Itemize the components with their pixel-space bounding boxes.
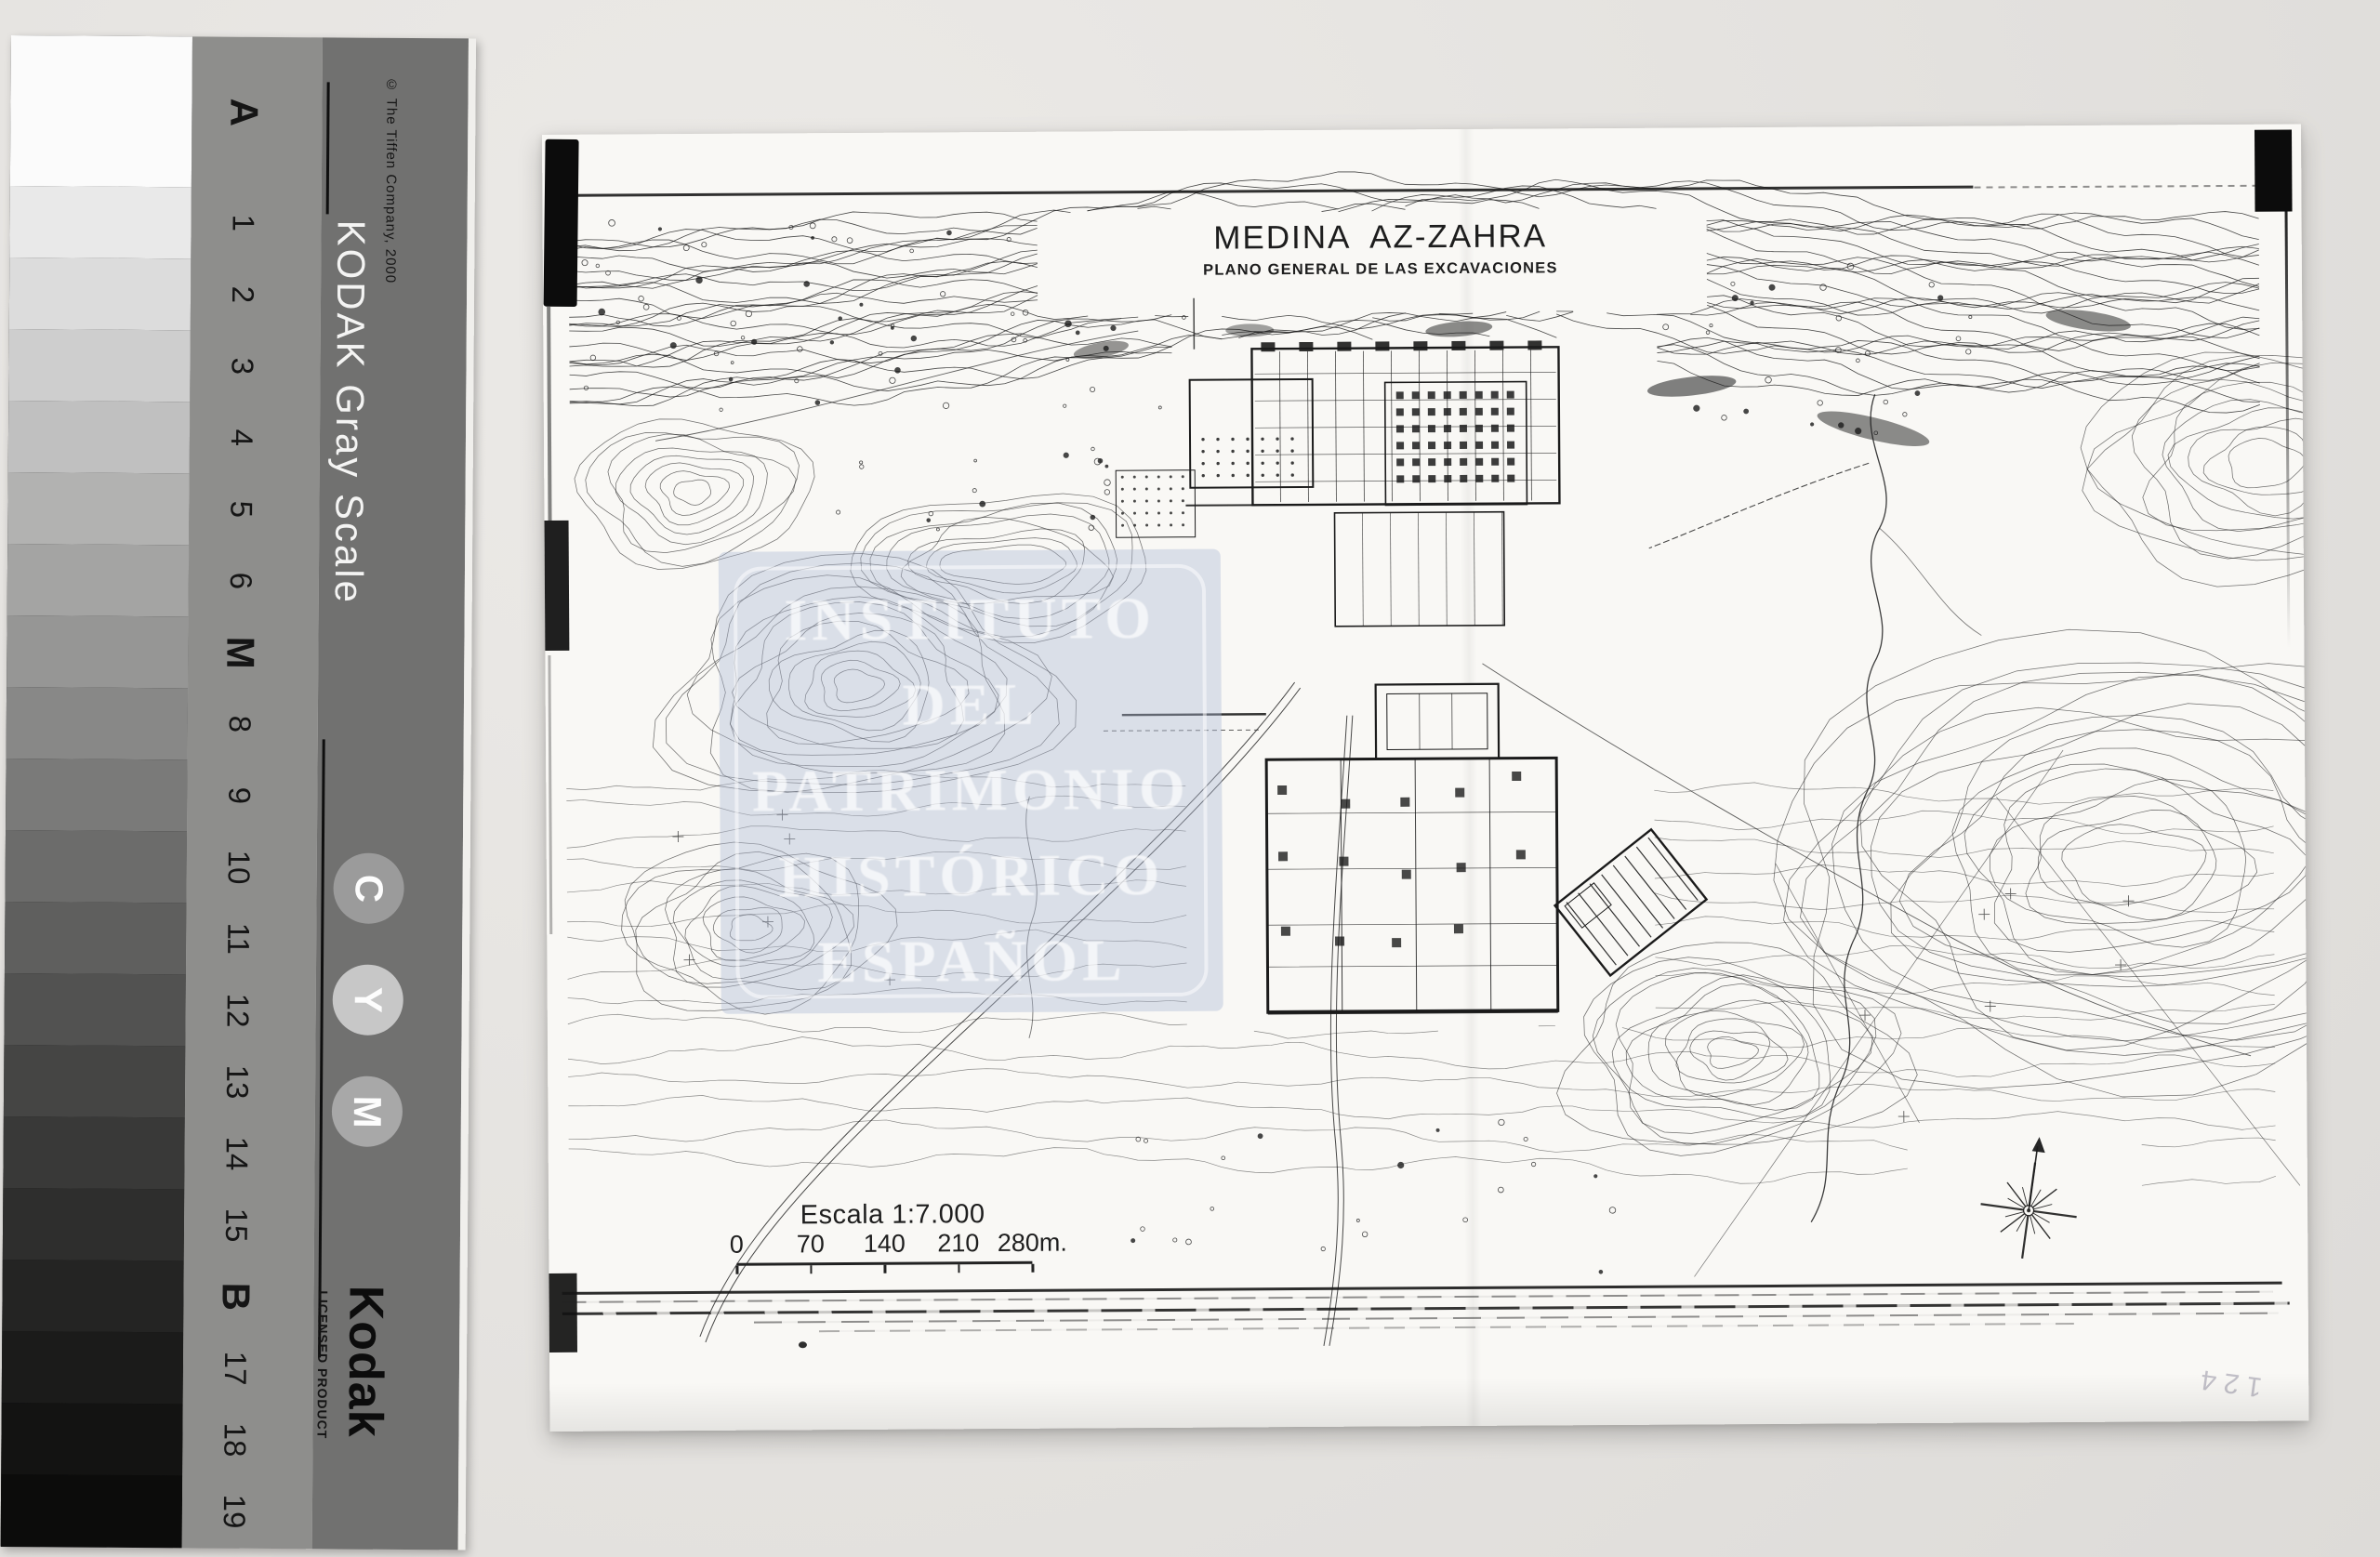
tree-symbol (658, 228, 661, 231)
tree-symbol (1065, 321, 1072, 327)
wall-line (1474, 512, 1474, 626)
excavated-structure (1460, 408, 1467, 416)
excavated-structure (1412, 391, 1420, 399)
tree-symbol (1937, 296, 1942, 300)
excavated-structure (1475, 408, 1483, 416)
contour-line (569, 1139, 2276, 1195)
scale-tick-label: 0 (730, 1231, 744, 1260)
contour-line (674, 480, 711, 506)
excavated-structure (1507, 391, 1514, 399)
column-dot (1262, 474, 1264, 477)
excavated-structure (1396, 475, 1404, 482)
column-dot (1216, 462, 1219, 465)
excavated-structure (1507, 475, 1514, 482)
title-block: MEDINA AZ-ZAHRA PLANO GENERAL DE LAS EXC… (1060, 217, 1701, 280)
tree-symbol (741, 336, 745, 339)
tree-symbol (670, 343, 676, 349)
column-dot (1261, 438, 1263, 441)
tree-symbol (1258, 1134, 1263, 1139)
tree-symbol (1089, 525, 1094, 531)
excavated-structure (1444, 425, 1451, 432)
tree-symbol (1969, 315, 1972, 318)
contour-line (2228, 438, 2306, 488)
patch-label-17: 17 (183, 1332, 314, 1405)
column-dot (1247, 474, 1249, 477)
wall-line (1255, 453, 1556, 455)
tree-symbol (1321, 1247, 1325, 1250)
scale-tick-label: 70 (797, 1230, 825, 1259)
column-dot (1216, 450, 1219, 453)
scan-artifact-bar-left (544, 139, 579, 307)
tree-symbol (974, 459, 977, 462)
column-dot (1170, 511, 1172, 514)
aqueduct-line (1648, 463, 1870, 548)
tree-symbol (839, 317, 842, 321)
excavated-structure (1412, 475, 1420, 482)
contour-line (2188, 418, 2308, 517)
excavated-structure (1555, 829, 1707, 975)
compass-rose-icon (2008, 1198, 2025, 1208)
excavated-structure (1460, 391, 1467, 399)
contour-line (568, 1112, 2275, 1158)
scale-bar-tick (1031, 1264, 1034, 1273)
tree-symbol (1499, 1119, 1504, 1125)
excavated-structure (1428, 408, 1435, 416)
column-dot (1182, 475, 1184, 478)
column-dot (1145, 512, 1148, 515)
mosque-hatch (1648, 838, 1698, 900)
column-dot (1182, 523, 1184, 526)
excavated-structure (1299, 342, 1313, 351)
gray-patch-9 (6, 759, 188, 831)
excavated-structure (1491, 458, 1499, 466)
boundary-line (1996, 795, 2300, 1187)
gray-patch-17 (2, 1331, 184, 1404)
gray-patch-3 (8, 329, 191, 402)
patch-label-15: 15 (184, 1189, 315, 1261)
mosque-hatch (1602, 875, 1651, 937)
excavated-structure (1376, 684, 1499, 759)
tree-symbol (1144, 1139, 1147, 1142)
contour-line (569, 315, 2259, 398)
excavated-structure (1460, 458, 1467, 466)
contour-line (2142, 381, 2308, 531)
contour-line (2025, 796, 2257, 925)
contour-line (1803, 627, 2308, 1089)
excavated-structure (1341, 799, 1350, 809)
tree-symbol (1111, 325, 1116, 330)
wall-line (1501, 512, 1502, 626)
excavated-structure (1512, 772, 1521, 781)
column-dot (1157, 499, 1160, 502)
patch-label-8: 8 (188, 688, 319, 760)
tree-symbol (1865, 351, 1870, 356)
column-dot (1276, 461, 1278, 464)
patch-label-18: 18 (182, 1404, 313, 1476)
tree-symbol (1722, 416, 1727, 421)
excavated-structure (1444, 458, 1451, 466)
excavated-structure (1507, 425, 1514, 432)
column-dot (1261, 462, 1263, 465)
column-dot (1216, 438, 1219, 441)
tree-symbol (1609, 1207, 1616, 1214)
contour-line (568, 1086, 2275, 1140)
column-dot (1133, 488, 1136, 491)
excavated-structure (1444, 391, 1451, 399)
column-dot (1133, 524, 1136, 527)
excavated-structure (1491, 442, 1499, 449)
tree-symbol (947, 231, 952, 235)
tree-symbol (1929, 283, 1934, 287)
column-dot (1182, 487, 1184, 490)
excavated-structure (1475, 442, 1483, 449)
tree-symbol (1694, 405, 1699, 411)
contour-line (568, 1028, 2275, 1086)
kodak-logo: Kodak (337, 1285, 390, 1545)
contour-line (660, 470, 730, 515)
column-dot (1246, 462, 1249, 465)
tree-symbol (1599, 1270, 1603, 1273)
contour-line (569, 276, 2259, 340)
column-dot (1121, 512, 1124, 515)
scale-bar-tick (883, 1265, 886, 1273)
excavated-structure (1396, 442, 1404, 449)
tree-symbol (1594, 1175, 1597, 1178)
tree-symbol (599, 309, 605, 315)
compass-north-arrow (2032, 1137, 2045, 1153)
column-dot (1145, 488, 1148, 491)
contour-line (1676, 1019, 1789, 1084)
tree-symbol (639, 296, 644, 301)
excavated-structure (1455, 788, 1464, 798)
tree-symbol (1131, 1239, 1135, 1243)
tree-symbol (1732, 296, 1738, 301)
column-dot (1121, 524, 1124, 527)
patch-label-2: 2 (191, 258, 322, 331)
excavated-structure (1402, 870, 1411, 879)
excavated-structure (1413, 341, 1427, 350)
excavated-structure (1396, 391, 1404, 399)
column-dot (1291, 473, 1294, 476)
contour-line (1708, 1036, 1759, 1068)
gray-patch-12 (4, 973, 186, 1046)
gray-patch-2 (9, 257, 192, 330)
contour-line (1799, 670, 2309, 1043)
column-dot (1201, 462, 1204, 465)
watermark-text: INSTITUTODELPATRIMONIOHISTÓRICOESPAÑOL (719, 549, 1223, 1014)
compass-north-arrow (2029, 1146, 2038, 1210)
gray-patch-5 (7, 472, 190, 545)
column-dot (1201, 438, 1204, 441)
tree-symbol (731, 362, 734, 364)
column-dot (1133, 476, 1136, 479)
tree-symbol (860, 303, 863, 306)
excavated-structure (1116, 470, 1195, 538)
gray-patch-11 (5, 902, 187, 974)
card-brand-text: KODAK Gray Scale (324, 219, 386, 814)
excavated-structure (1428, 425, 1435, 432)
copyright-text: © The Tiffen Company, 2000 (382, 77, 416, 356)
tree-symbol (1090, 387, 1094, 391)
tree-symbol (815, 401, 820, 405)
contour-line (630, 455, 754, 535)
contour-line (615, 447, 768, 545)
scale-bar-tick (810, 1265, 813, 1273)
excavated-structure (1451, 341, 1465, 350)
tree-symbol (702, 243, 707, 247)
column-dot (1182, 511, 1184, 514)
contour-line (1665, 1010, 1805, 1098)
gray-patch-15 (3, 1188, 185, 1260)
contour-line (2132, 378, 2309, 560)
tree-symbol (940, 292, 945, 297)
column-dot (1290, 449, 1293, 452)
card-rule-line (326, 82, 329, 214)
scale-bar (736, 1261, 1032, 1277)
road-line (1482, 659, 2251, 1061)
gray-patch-8 (7, 687, 189, 759)
tree-symbol (609, 219, 615, 226)
column-dot (1121, 488, 1124, 491)
contour-line (1690, 1031, 1770, 1081)
excavated-structure (1460, 425, 1467, 432)
column-dot (1145, 524, 1148, 527)
excavated-structure (1491, 391, 1499, 399)
patch-label-5: 5 (189, 473, 320, 546)
watermark-line: HISTÓRICO (778, 832, 1164, 920)
tree-symbol (1173, 1238, 1177, 1242)
tree-symbol (832, 237, 837, 242)
column-dot (1231, 438, 1234, 441)
survey-cross (1978, 909, 1990, 920)
ink-smudge (1225, 323, 1274, 336)
mosque-hatch (1636, 847, 1686, 909)
gray-patch-6 (7, 544, 190, 616)
mosque-hatch (1567, 903, 1616, 965)
excavated-structure (1337, 342, 1351, 351)
column-dot (1231, 450, 1234, 453)
column-dot (1121, 500, 1124, 503)
tree-symbol (1498, 1187, 1503, 1193)
tree-symbol (943, 402, 948, 408)
tree-symbol (1744, 409, 1749, 414)
tree-symbol (1915, 391, 1920, 396)
column-dot (1133, 512, 1136, 515)
excavated-structure (1444, 408, 1451, 416)
tree-symbol (746, 310, 751, 316)
patch-label-3: 3 (190, 330, 321, 402)
watermark-line: DEL (902, 662, 1038, 748)
patch-label-A: A (192, 36, 323, 188)
excavated-structure (1428, 391, 1435, 399)
excavated-structure (1400, 798, 1409, 807)
column-dot (1246, 450, 1249, 453)
gray-patch-1 (9, 186, 192, 258)
survey-cross (672, 831, 683, 842)
tree-symbol (582, 260, 588, 266)
wall-line (1390, 512, 1391, 626)
watermark-line: PATRIMONIO (752, 746, 1190, 835)
patch-label-1: 1 (191, 187, 322, 259)
excavated-structure (1460, 442, 1467, 449)
survey-cross (683, 955, 694, 966)
tree-symbol (1076, 331, 1079, 335)
contour-line (1951, 747, 2308, 976)
wall-line (1255, 372, 1556, 374)
watermark-stamp: INSTITUTODELPATRIMONIOHISTÓRICOESPAÑOL (719, 549, 1223, 1014)
tree-symbol (1091, 447, 1095, 451)
gray-patch-14 (3, 1116, 185, 1189)
wall-line (1418, 512, 1419, 626)
mosque-hatch (1625, 856, 1674, 918)
tree-symbol (860, 461, 863, 464)
column-dot (1157, 523, 1160, 526)
tree-symbol (1884, 400, 1888, 404)
ink-smudge (1425, 319, 1493, 338)
licensed-product-text: LICENSED PRODUCT (314, 1290, 340, 1532)
tree-symbol (847, 238, 853, 244)
tree-symbol (1531, 1162, 1535, 1166)
excavated-structure (1489, 341, 1503, 350)
wall-line (1446, 512, 1447, 626)
tree-symbol (1158, 406, 1161, 409)
column-dot (1145, 500, 1148, 503)
scan-artifact-bar-left (545, 521, 570, 651)
tree-symbol (677, 316, 681, 320)
wall-line (1255, 399, 1556, 401)
gray-patch-M (7, 615, 189, 688)
tree-symbol (1063, 404, 1065, 407)
patch-label-13: 13 (185, 1046, 316, 1118)
contour-line (2062, 824, 2207, 905)
excavated-structure (1396, 408, 1404, 416)
tree-symbol (1769, 284, 1775, 290)
ink-circles: CYM (323, 37, 469, 38)
compass-rose-icon (2016, 1215, 2027, 1232)
column-dot (1246, 438, 1249, 441)
compass-rose-icon (2022, 1215, 2029, 1259)
watermark-line: ESPAÑOL (817, 917, 1127, 1005)
contour-line (2080, 350, 2308, 587)
patch-label-12: 12 (185, 974, 316, 1047)
column-dot (1133, 500, 1136, 503)
contour-line (1616, 972, 1873, 1134)
column-dot (1157, 475, 1160, 478)
tree-symbol (731, 321, 736, 326)
excavated-structure (1475, 391, 1483, 399)
tree-symbol (1011, 312, 1014, 316)
ink-smudge (1815, 404, 1932, 454)
tree-symbol (1663, 324, 1669, 330)
tree-symbol (1436, 1128, 1439, 1131)
tree-symbol (830, 340, 834, 344)
excavated-structure (1428, 458, 1435, 466)
patch-label-11: 11 (186, 903, 317, 975)
excavated-structure (1507, 442, 1514, 449)
contour-line (645, 462, 744, 525)
excavated-structure (1475, 475, 1483, 482)
tree-symbol (729, 377, 733, 381)
wall-line (1266, 811, 1557, 967)
watermark-line: INSTITUTO (784, 575, 1156, 663)
excavated-structure (1444, 442, 1451, 449)
column-dot (1290, 437, 1293, 440)
contour-line (1583, 956, 1902, 1156)
compass-rose-icon (2032, 1213, 2049, 1223)
wall-line (1341, 759, 1491, 1012)
excavated-structure (1444, 475, 1451, 482)
tree-symbol (1186, 1239, 1192, 1245)
mosque-hatch (1613, 865, 1662, 928)
gray-patch-4 (8, 401, 191, 473)
excavated-structure (1392, 938, 1401, 947)
excavated-structure (1412, 442, 1420, 449)
excavated-structure (1475, 425, 1483, 432)
column-dot (1231, 462, 1234, 465)
tree-symbol (804, 282, 810, 287)
excavated-structure (1412, 458, 1420, 466)
ink-circle-m: M (332, 1075, 403, 1147)
gray-patch-10 (5, 830, 187, 903)
tree-symbol (720, 408, 722, 411)
excavated-structure (1516, 850, 1526, 859)
excavated-structure (1507, 458, 1514, 466)
column-dot (1202, 474, 1205, 477)
column-dot (1261, 450, 1263, 453)
tree-symbol (1210, 1207, 1214, 1211)
tree-symbol (1141, 1227, 1145, 1232)
survey-cross (1898, 1111, 1910, 1122)
tree-symbol (895, 367, 901, 373)
scan-artifact-dot (799, 1341, 807, 1348)
mosque-hatch (1590, 884, 1639, 946)
tree-symbol (1818, 401, 1823, 406)
column-dot (1170, 475, 1172, 478)
tree-symbol (1091, 515, 1095, 520)
tree-symbol (696, 277, 703, 284)
tree-symbol (1356, 1219, 1359, 1221)
tree-symbol (812, 236, 814, 239)
patch-label-6: 6 (189, 545, 320, 617)
patch-label-B: B (183, 1260, 314, 1333)
tree-symbol (860, 465, 864, 468)
tree-symbol (1064, 453, 1068, 457)
wall-line (1363, 513, 1364, 627)
tree-symbol (1104, 490, 1110, 495)
tree-symbol (1463, 1218, 1468, 1222)
tree-symbol (927, 519, 931, 522)
scale-heading: Escala 1:7.000 (739, 1199, 1046, 1232)
card-rule-line (318, 739, 324, 1357)
tree-symbol (1222, 1156, 1225, 1160)
compass-rose-icon (1981, 1204, 2025, 1210)
scan-artifact-corner-blob (2254, 130, 2293, 212)
excavated-structure (1412, 408, 1420, 416)
column-dot (1290, 461, 1293, 464)
stream-line (1880, 528, 1982, 637)
excavated-structure (1266, 758, 1558, 1012)
ink-circle-c: C (333, 852, 404, 924)
map-title: MEDINA AZ-ZAHRA (1060, 217, 1701, 257)
excavated-structure (1475, 458, 1483, 466)
excavated-structure (1491, 425, 1499, 432)
excavated-structure (1335, 936, 1344, 945)
excavated-structure (1278, 851, 1288, 861)
excavated-structure (1428, 475, 1435, 482)
patch-label-19: 19 (182, 1475, 313, 1548)
tree-symbol (683, 245, 689, 251)
excavated-structure (1375, 341, 1389, 350)
